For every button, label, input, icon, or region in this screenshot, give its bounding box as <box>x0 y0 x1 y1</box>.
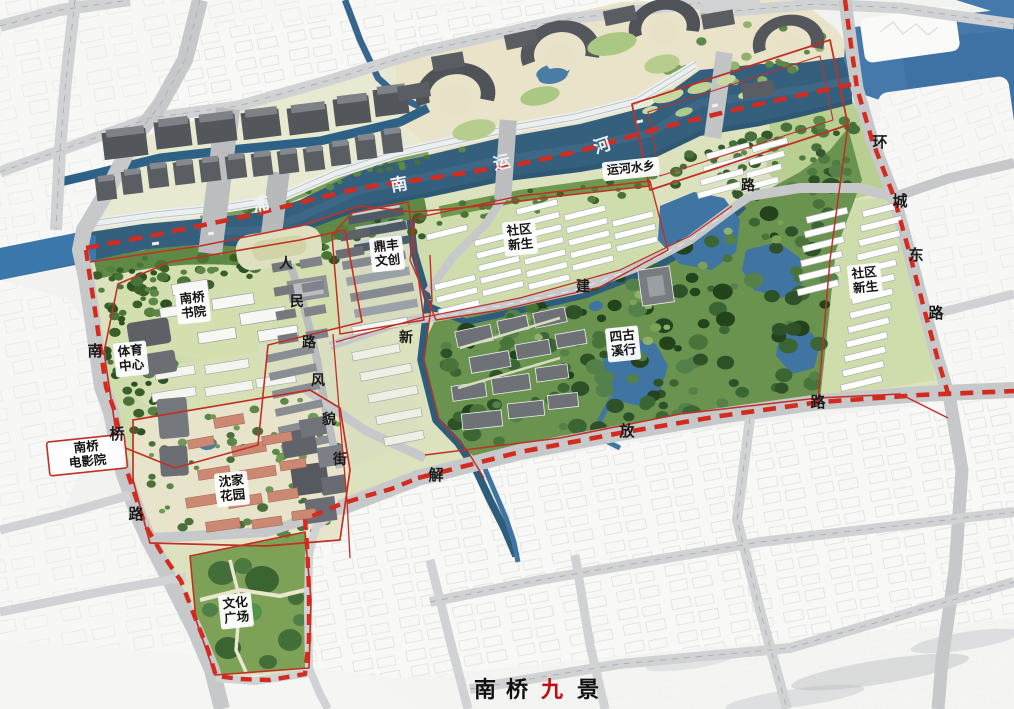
svg-text:建: 建 <box>576 278 590 294</box>
svg-text:城: 城 <box>892 192 907 210</box>
svg-text:放: 放 <box>618 422 635 440</box>
svg-text:路: 路 <box>928 304 944 322</box>
svg-text:南: 南 <box>474 677 496 702</box>
svg-text:解: 解 <box>428 466 443 484</box>
svg-text:路: 路 <box>810 393 826 411</box>
svg-text:新: 新 <box>399 329 413 345</box>
svg-text:南: 南 <box>389 173 409 196</box>
svg-text:风: 风 <box>311 372 325 388</box>
svg-text:广场: 广场 <box>223 608 249 626</box>
svg-text:路: 路 <box>302 334 317 350</box>
svg-text:路: 路 <box>741 177 756 193</box>
svg-text:书院: 书院 <box>180 303 207 321</box>
svg-text:花园: 花园 <box>219 486 245 504</box>
svg-text:民: 民 <box>290 293 304 309</box>
svg-text:人: 人 <box>279 255 294 271</box>
svg-text:溪行: 溪行 <box>610 341 637 359</box>
svg-text:中心: 中心 <box>118 356 145 374</box>
svg-text:新生: 新生 <box>507 235 534 253</box>
svg-text:环: 环 <box>872 134 887 151</box>
svg-text:东: 东 <box>908 246 923 264</box>
svg-text:桥: 桥 <box>109 425 125 443</box>
svg-text:街: 街 <box>332 451 347 467</box>
svg-text:九: 九 <box>540 677 563 702</box>
svg-text:新生: 新生 <box>852 278 879 296</box>
svg-text:貌: 貌 <box>321 411 336 427</box>
svg-text:南: 南 <box>87 342 102 360</box>
svg-text:景: 景 <box>577 677 599 702</box>
svg-text:文创: 文创 <box>374 251 400 269</box>
svg-text:路: 路 <box>128 505 144 523</box>
svg-text:桥: 桥 <box>506 677 528 702</box>
